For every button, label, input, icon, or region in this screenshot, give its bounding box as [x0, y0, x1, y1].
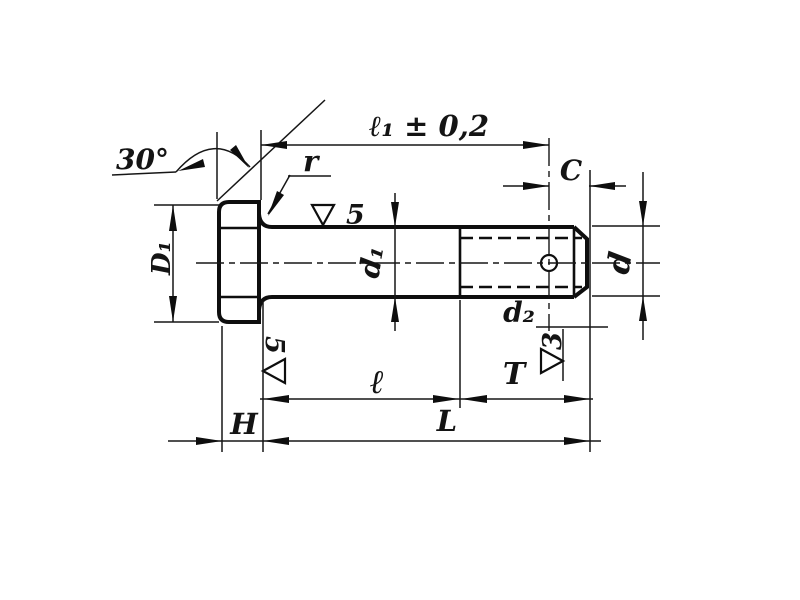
dim-d-arrowhead-bottom: [639, 296, 647, 321]
dim-D1-label: D₁: [147, 241, 177, 276]
dim-l-arrowhead-left: [263, 395, 289, 403]
dim-l1-arrowhead-right: [523, 141, 549, 149]
angle-dimension: 30°: [112, 100, 325, 201]
d2-label: d₂: [503, 296, 535, 329]
dim-L-label: L: [436, 404, 457, 438]
finish-triangle-icon: [312, 205, 334, 225]
angle-arc-arrowhead-right: [230, 145, 249, 168]
dim-l-arrowhead-right: [433, 395, 459, 403]
dim-D1-arrowhead-top: [169, 205, 177, 231]
dimension-l: ℓ: [260, 362, 460, 403]
radius-leader-arrowhead: [268, 191, 284, 216]
dim-D1-arrowhead-bottom: [169, 296, 177, 322]
radius-label: r: [303, 144, 321, 178]
dimension-L: L: [263, 404, 601, 445]
dim-L-arrowhead-right: [564, 437, 590, 445]
dim-l1-label: ℓ₁ ± 0,2: [369, 109, 489, 143]
hole-diameter-annotation: d₂: [503, 296, 608, 329]
dim-h-arrowhead-left: [196, 437, 222, 445]
dim-l-label: ℓ: [370, 362, 384, 401]
dimension-t: T: [460, 357, 593, 403]
clevis-pin-drawing: 30° r ℓ₁ ± 0,2 C D₁ d₁: [0, 0, 800, 600]
bolt-head-outline: [219, 202, 259, 322]
finish-triangle-icon: [541, 349, 563, 373]
dim-c-arrowhead-left: [523, 182, 549, 190]
dimension-c: C: [503, 154, 626, 190]
dim-d1-arrowhead-top: [391, 202, 399, 227]
dim-t-label: T: [503, 357, 528, 392]
dimension-d-nominal: d: [592, 172, 660, 340]
dim-L-arrowhead-left: [263, 437, 289, 445]
dim-d-label: d: [600, 249, 639, 277]
finish-digit: 5: [346, 200, 365, 231]
dim-c-arrowhead-right: [589, 182, 615, 190]
dim-d1-label: d₁: [352, 243, 390, 280]
finish-triangle-icon: [263, 359, 285, 383]
dim-d1-arrowhead-bottom: [391, 297, 399, 322]
dim-t-arrowhead-right: [564, 395, 590, 403]
technical-drawing-canvas: 30° r ℓ₁ ± 0,2 C D₁ d₁: [0, 0, 800, 600]
shank-top-line: [259, 214, 574, 227]
angle-label: 30°: [116, 143, 169, 176]
dim-t-arrowhead-left: [461, 395, 487, 403]
dim-d-arrowhead-top: [639, 201, 647, 226]
finish-mark-hole: 3: [538, 329, 568, 381]
finish-digit: 3: [538, 332, 568, 350]
dimension-h: H: [168, 407, 263, 445]
dim-c-label: C: [560, 154, 583, 187]
dim-h-label: H: [229, 407, 259, 441]
